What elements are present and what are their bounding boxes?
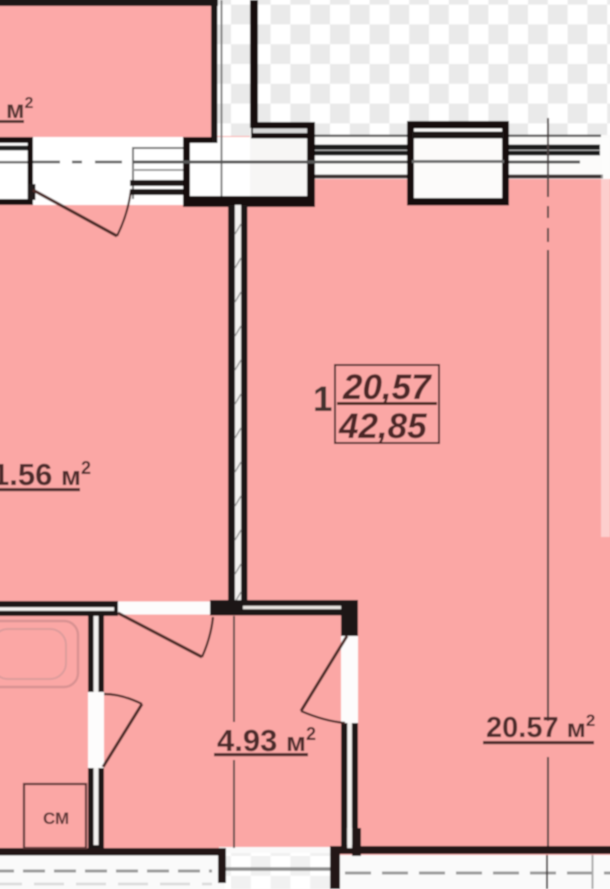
svg-text:4.93 м2: 4.93 м2 bbox=[217, 723, 316, 758]
svg-text:1: 1 bbox=[313, 380, 332, 419]
svg-text:СМ: СМ bbox=[43, 809, 69, 828]
svg-text:20.57 м2: 20.57 м2 bbox=[486, 711, 595, 744]
svg-text:42,85: 42,85 bbox=[338, 407, 427, 446]
svg-text:20,57: 20,57 bbox=[342, 368, 432, 407]
svg-text:1.56 м2: 1.56 м2 bbox=[0, 457, 91, 492]
